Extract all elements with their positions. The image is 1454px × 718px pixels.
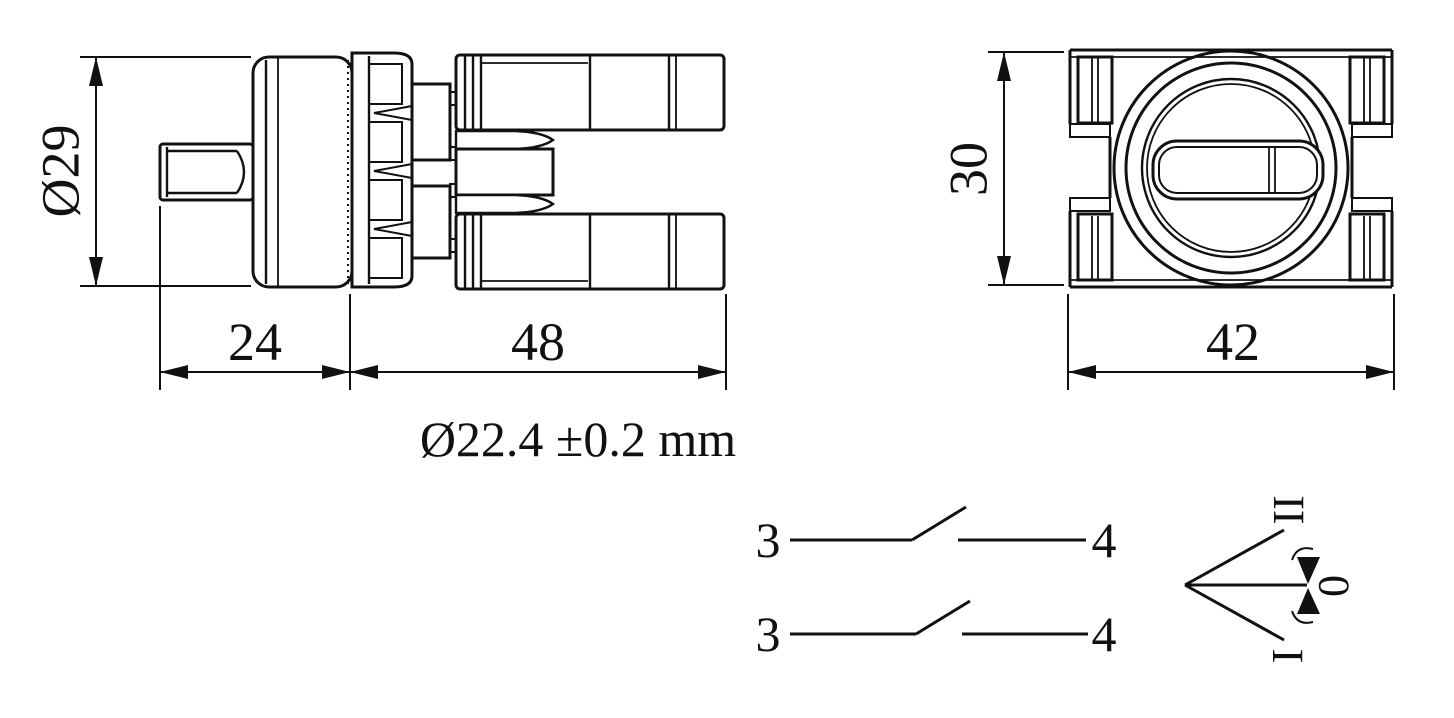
front-bezel [253,57,352,287]
side-view-drawing [160,53,724,289]
dim-label-48: 48 [511,312,565,372]
terminal-label: 3 [756,606,781,662]
contact-blade [916,601,970,634]
knob-shaft [160,144,253,200]
front-view-drawing [1070,50,1392,287]
dim-label-diameter: Ø29 [30,125,90,218]
dim-label-24: 24 [228,312,282,372]
left-clips [1070,50,1112,287]
dim-label-42: 42 [1206,312,1260,372]
position-diagram: II 0 I [1185,495,1358,663]
dim-label-30: 30 [938,142,998,196]
contact-row-1: 3 4 [756,507,1117,568]
lower-pusher [456,195,553,213]
mounting-diameter-note: Ø22.4 ±0.2 mm [420,411,736,467]
contact-block [456,55,724,289]
terminal-label: 3 [756,512,781,568]
plunger-body [456,149,553,195]
mounting-adapter [412,84,458,258]
contact-diagram: 3 4 3 4 [756,507,1117,662]
right-clips [1350,50,1392,287]
contact-blade [912,507,966,540]
contact-row-2: 3 4 [756,601,1117,662]
position-label-bottom: I [1263,649,1312,664]
position-label-center: 0 [1309,575,1358,597]
terminal-label: 4 [1092,606,1117,662]
dimension-30: 30 [938,52,1064,285]
dimension-42: 42 [1068,294,1394,390]
upper-pusher [456,131,553,149]
dimension-diameter-29: Ø29 [30,57,251,286]
selector-knob [1153,141,1323,199]
castellated-collar [352,53,412,287]
position-label-top: II [1264,495,1313,524]
technical-drawing-canvas: Ø29 24 48 Ø22.4 ±0.2 mm [0,0,1454,713]
terminal-label: 4 [1092,512,1117,568]
